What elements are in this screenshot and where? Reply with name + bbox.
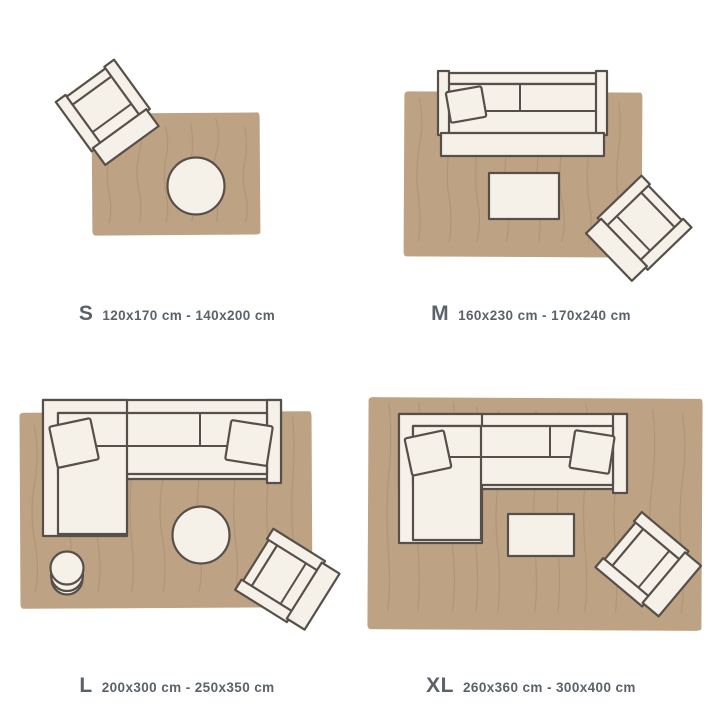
size-letter: M bbox=[431, 302, 449, 326]
size-letter: L bbox=[79, 674, 92, 698]
sofa bbox=[438, 71, 607, 157]
size-label-xl: XL 260x360 cm - 300x400 cm bbox=[354, 674, 708, 698]
size-label-s: S 120x170 cm - 140x200 cm bbox=[0, 302, 354, 326]
coffee-table bbox=[506, 512, 576, 558]
round-coffee-table bbox=[169, 503, 233, 567]
pillow bbox=[404, 430, 451, 475]
size-label-m: M 160x230 cm - 170x240 cm bbox=[354, 302, 708, 326]
sectional-sofa bbox=[42, 399, 282, 537]
size-letter: XL bbox=[426, 674, 454, 698]
size-range: 120x170 cm - 140x200 cm bbox=[102, 308, 275, 323]
size-letter: S bbox=[79, 302, 94, 326]
size-range: 260x360 cm - 300x400 cm bbox=[463, 680, 636, 695]
pillow bbox=[569, 430, 614, 474]
rug-size-guide: S 120x170 cm - 140x200 cm bbox=[0, 0, 708, 708]
side-table bbox=[46, 548, 88, 598]
pillow bbox=[446, 86, 487, 123]
round-coffee-table bbox=[164, 154, 228, 218]
size-label-l: L 200x300 cm - 250x350 cm bbox=[0, 674, 354, 698]
pillow bbox=[225, 420, 273, 466]
pillow bbox=[49, 418, 99, 468]
coffee-table bbox=[487, 171, 561, 221]
size-range: 160x230 cm - 170x240 cm bbox=[458, 308, 631, 323]
size-range: 200x300 cm - 250x350 cm bbox=[102, 680, 275, 695]
